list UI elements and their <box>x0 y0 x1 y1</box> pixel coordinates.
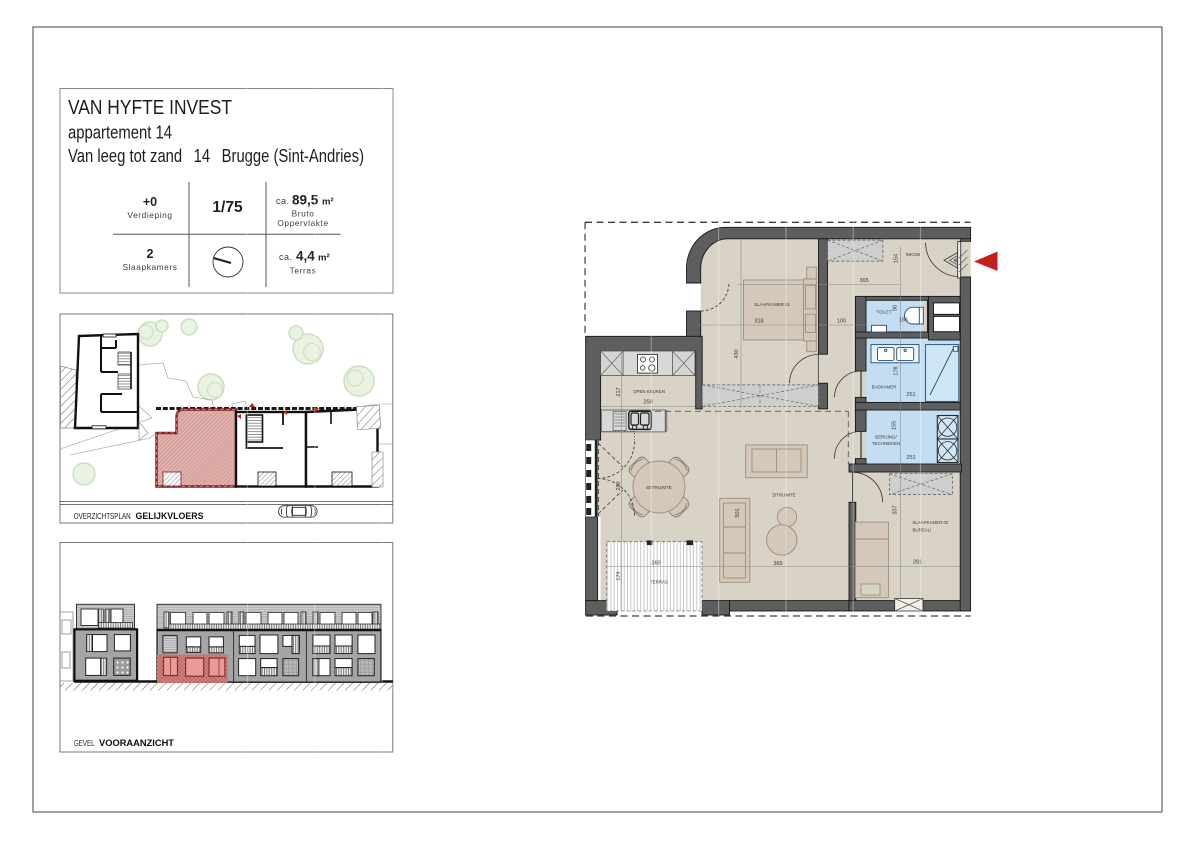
svg-text:Oppervlakte: Oppervlakte <box>277 218 328 228</box>
svg-text:OPEN KEUKEN: OPEN KEUKEN <box>633 389 665 394</box>
svg-text:VOORAANZICHT: VOORAANZICHT <box>99 738 174 749</box>
svg-text:318: 318 <box>754 319 763 325</box>
svg-text:174: 174 <box>616 571 622 580</box>
svg-text:100: 100 <box>837 319 846 325</box>
svg-text:217: 217 <box>616 387 622 396</box>
svg-text:BERGING/: BERGING/ <box>875 435 897 440</box>
svg-text:365: 365 <box>773 561 782 567</box>
svg-text:501: 501 <box>735 508 741 517</box>
svg-text:Slaapkamers: Slaapkamers <box>122 262 177 272</box>
svg-text:430: 430 <box>734 349 740 358</box>
svg-text:178: 178 <box>894 366 900 375</box>
svg-text:+0: +0 <box>143 195 157 209</box>
svg-text:ca.: ca. <box>279 252 293 262</box>
svg-text:GEVEL: GEVEL <box>74 738 95 748</box>
svg-text:appartement 14: appartement 14 <box>68 123 172 143</box>
svg-text:TOILET: TOILET <box>876 310 892 315</box>
svg-text:4,4: 4,4 <box>296 249 315 264</box>
svg-text:ca.: ca. <box>276 196 290 206</box>
svg-text:Verdieping: Verdieping <box>127 210 172 220</box>
svg-text:251: 251 <box>906 455 915 461</box>
svg-text:m²: m² <box>318 253 330 264</box>
svg-text:Terras: Terras <box>290 266 317 276</box>
svg-text:Bruto: Bruto <box>292 209 315 219</box>
svg-text:TECHNIEKEN: TECHNIEKEN <box>872 441 900 446</box>
svg-text:166: 166 <box>899 318 908 324</box>
svg-text:155: 155 <box>892 421 898 430</box>
svg-text:280: 280 <box>616 481 622 490</box>
svg-text:SLAAPKAMER 01: SLAAPKAMER 01 <box>754 302 790 307</box>
svg-text:TERRAS: TERRAS <box>650 580 668 585</box>
svg-text:1/75: 1/75 <box>212 199 243 216</box>
svg-text:365: 365 <box>859 278 868 284</box>
svg-text:90: 90 <box>892 305 898 311</box>
svg-text:BADKAMER: BADKAMER <box>872 385 897 390</box>
svg-text:SLAAPKAMER 02: SLAAPKAMER 02 <box>913 520 949 525</box>
svg-text:GELIJKVLOERS: GELIJKVLOERS <box>136 511 204 522</box>
svg-text:Van leeg tot zand 14 Brugge: Van leeg tot zand 14 Brugge (Sint-Andrie… <box>68 146 364 166</box>
svg-text:INKOM: INKOM <box>906 252 921 257</box>
svg-text:OVERZICHTSPLAN: OVERZICHTSPLAN <box>74 511 131 521</box>
svg-text:m²: m² <box>322 197 334 208</box>
svg-text:2: 2 <box>147 247 154 261</box>
svg-text:ZITRUIMTE: ZITRUIMTE <box>772 493 795 498</box>
svg-text:260: 260 <box>651 561 660 567</box>
svg-text:337: 337 <box>893 505 899 514</box>
svg-text:EETRUIMTE: EETRUIMTE <box>646 485 671 490</box>
svg-text:BUREAU: BUREAU <box>913 527 931 532</box>
svg-text:154: 154 <box>894 254 900 263</box>
svg-text:251: 251 <box>906 392 915 398</box>
svg-text:VAN HYFTE INVEST: VAN HYFTE INVEST <box>68 96 232 119</box>
